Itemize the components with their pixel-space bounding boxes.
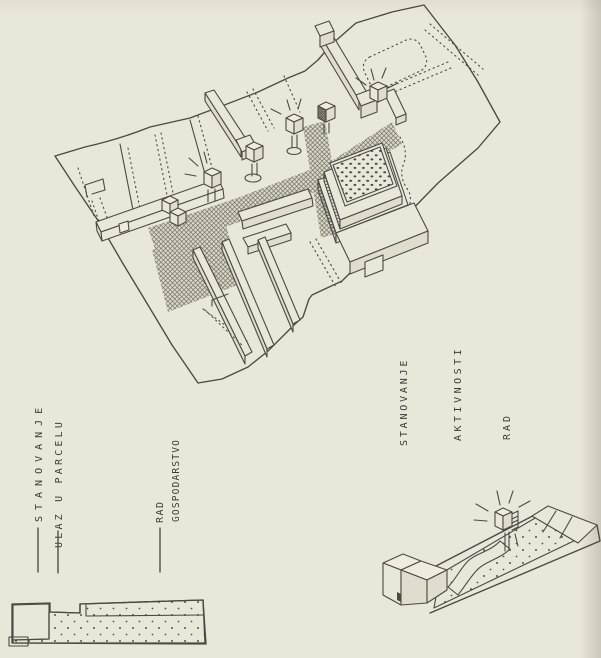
- legend-label-rad: RAD: [155, 500, 166, 523]
- parcel-dotted-line: [155, 135, 168, 200]
- left-legend: STANOVANJE ULAZ U PARCELU RAD GOSPODARST…: [34, 402, 182, 573]
- legend-label-stanovanje: STANOVANJE: [399, 358, 410, 446]
- lamp-rays: [271, 99, 301, 114]
- parcel-dotted-line: [430, 24, 483, 69]
- sketch-canvas: STANOVANJE ULAZ U PARCELU RAD GOSPODARST…: [0, 0, 601, 658]
- legend-label-gospodarstvo: GOSPODARSTVO: [171, 439, 182, 522]
- legend-label-aktivnosti: AKTIVNOSTI: [453, 346, 464, 441]
- parcel-line: [120, 144, 133, 210]
- parcel-dotted-line: [284, 76, 300, 112]
- parcel-dotted-line: [161, 133, 174, 198]
- legend-label-stanovanje: STANOVANJE: [34, 402, 45, 522]
- bush-ellipse: [245, 174, 261, 182]
- parcel-dotted-line: [316, 239, 342, 284]
- parcel-dotted-line: [128, 148, 141, 214]
- lamp-cube: [271, 99, 303, 155]
- detail-axonometric-drawing: [383, 491, 600, 613]
- lamp-post: [292, 135, 297, 148]
- stepped-pavilion: [318, 143, 428, 277]
- section-hatched-block: [13, 604, 49, 640]
- lamp-cube: [245, 142, 263, 182]
- parcel-dotted-line: [310, 242, 336, 287]
- scanned-sketch-page: STANOVANJE ULAZ U PARCELU RAD GOSPODARST…: [0, 0, 601, 658]
- section-drawing: [9, 600, 206, 646]
- footprint-outline: [85, 179, 105, 197]
- legend-label-ulaz-u-parcelu: ULAZ U PARCELU: [54, 419, 65, 548]
- cube-ladder-panel: [512, 511, 518, 530]
- section-ground-stipple: [13, 600, 205, 643]
- bush-ellipse: [287, 148, 301, 155]
- legend-label-rad: RAD: [502, 413, 513, 440]
- main-axonometric-drawing: [55, 5, 500, 383]
- right-legend: STANOVANJE AKTIVNOSTI RAD: [399, 346, 513, 446]
